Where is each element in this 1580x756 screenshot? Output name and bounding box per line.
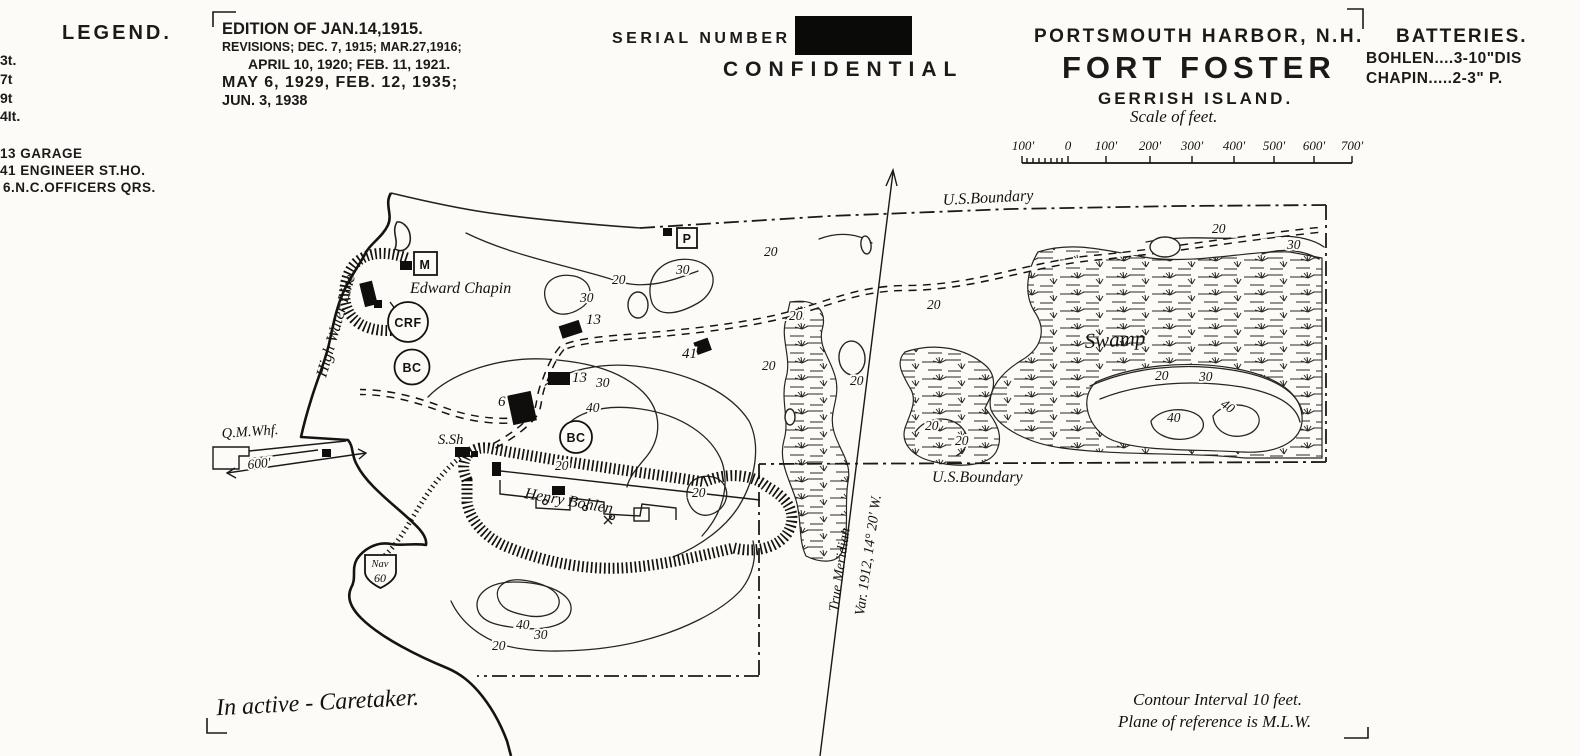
contour-label: 20 <box>762 358 776 373</box>
legend-partial-entry: 3t. <box>0 52 16 68</box>
building-label: 6 <box>498 394 506 410</box>
contour-label: 40 <box>586 400 600 415</box>
map-canvas: CRF BC BC M P Nav 60 U.S.Boundary U.S.Bo… <box>0 0 1580 756</box>
scale-tick-label: 200' <box>1139 138 1161 154</box>
edition-line: REVISIONS; DEC. 7, 1915; MAR.27,1916; <box>222 40 462 54</box>
contour-label: 30 <box>533 627 548 642</box>
contour-label: 40 <box>516 617 530 632</box>
bc-station-label-bohlen: BC <box>566 431 585 445</box>
building-label: 13 <box>586 312 601 328</box>
scale-bar <box>1022 156 1352 163</box>
scale-tick-label: 500' <box>1263 138 1285 154</box>
battery-bohlen-label: Henry Bohlen <box>522 485 614 517</box>
battery-chapin-label: Edward Chapin <box>409 280 511 297</box>
shore-shed-label: S.Sh <box>438 432 463 448</box>
contour-label: 20 <box>789 308 803 323</box>
variation-label: Var. 1912, 14° 20' W. <box>852 494 885 617</box>
battery-name: CHAPIN <box>1366 70 1428 87</box>
legend-partial-entry: 7t <box>0 71 12 87</box>
legend-partial-entry: 4It. <box>0 108 20 124</box>
edition-line: JUN. 3, 1938 <box>222 93 462 109</box>
contour-label: 20 <box>955 433 969 448</box>
legend-item: 41 ENGINEER ST.HO. <box>0 163 146 178</box>
fort-henry-bohlen <box>464 448 792 568</box>
contour-label: 20 <box>492 638 506 653</box>
contour-label: 30 <box>595 375 610 390</box>
scale-tick-label: 300' <box>1181 138 1203 154</box>
bc-station-label-chapin: BC <box>402 361 421 375</box>
contour-label: 20 <box>925 418 939 433</box>
building-label: 41 <box>682 346 697 362</box>
edition-line: EDITION OF JAN.14,1915. <box>222 20 462 39</box>
battery-armament: 3-10"DIS <box>1454 50 1522 67</box>
contour-label: 20 <box>1212 221 1226 236</box>
confidential-stamp: CONFIDENTIAL <box>723 58 963 82</box>
contour-label: 20 <box>1155 368 1169 383</box>
edition-line: APRIL 10, 1920; FEB. 11, 1921. <box>248 56 462 72</box>
battery-name: BOHLEN <box>1366 50 1434 67</box>
fort-foster-map-sheet: { "header": { "legend_title": "LEGEND.",… <box>0 0 1580 756</box>
swamp-label: Swamp <box>1084 326 1146 353</box>
scale-tick-label: 100' <box>1095 138 1117 154</box>
contour-label: 20 <box>555 458 569 473</box>
legend-title: LEGEND. <box>62 22 172 45</box>
battery-row-chapin: CHAPIN.....2-3" P. <box>1366 70 1503 88</box>
contour-label: 30 <box>1286 237 1301 252</box>
contour-label: 40 <box>1218 396 1238 416</box>
map-title-harbor: PORTSMOUTH HARBOR, N.H. <box>1034 26 1364 48</box>
legend-item: 13 GARAGE <box>0 146 83 161</box>
scale-tick-label: 100' <box>1012 138 1034 154</box>
mine-marker-label: M <box>420 258 431 272</box>
battery-row-bohlen: BOHLEN....3-10"DIS <box>1366 50 1522 68</box>
contour-label: 20 <box>612 272 626 287</box>
contour-label: 20 <box>927 297 941 312</box>
serial-number-redaction <box>795 16 912 55</box>
us-boundary-label-mid: U.S.Boundary <box>932 469 1024 486</box>
serial-number-label: SERIAL NUMBER <box>612 30 791 48</box>
building-label: 13 <box>572 370 587 386</box>
map-subtitle-island: GERRISH ISLAND. <box>1098 89 1293 109</box>
battery-leader-dots: .... <box>1434 50 1453 67</box>
qm-wharf <box>213 441 366 478</box>
scale-caption: Scale of feet. <box>1130 107 1217 127</box>
map-title-fort: FORT FOSTER <box>1062 50 1336 86</box>
scale-tick-label: 400' <box>1223 138 1245 154</box>
contour-label: 30 <box>579 290 594 305</box>
battery-leader-dots: ..... <box>1428 70 1452 87</box>
contour-label: 20 <box>764 244 778 259</box>
contour-label: 40 <box>1167 410 1181 425</box>
scale-tick-label: 0 <box>1065 138 1072 154</box>
p-marker-label: P <box>683 232 692 246</box>
scale-tick-label: 600' <box>1303 138 1325 154</box>
nav-marker-bottom-label: 60 <box>374 571 386 585</box>
buildings <box>400 228 712 457</box>
legend-partial-entry: 9t <box>0 90 12 106</box>
legend-item: 6.N.C.OFFICERS QRS. <box>3 180 156 195</box>
contour-label: 30 <box>1198 369 1213 384</box>
us-boundary-label-top: U.S.Boundary <box>942 187 1034 209</box>
battery-armament: 2-3" P. <box>1452 70 1502 87</box>
contour-label: 20 <box>692 485 706 500</box>
scale-tick-label: 700' <box>1341 138 1363 154</box>
crf-station-label: CRF <box>394 316 421 330</box>
contour-interval-note: Contour Interval 10 feet. <box>1133 690 1302 710</box>
batteries-title: BATTERIES. <box>1396 26 1528 48</box>
qm-wharf-label: Q.M.Whf. <box>221 422 279 442</box>
contour-label: 20 <box>850 373 864 388</box>
high-water-line-label: High Water Line <box>313 272 359 380</box>
wharf-distance-label: 600' <box>247 455 273 472</box>
edition-line: MAY 6, 1929, FEB. 12, 1935; <box>222 74 462 92</box>
nav-marker-top-label: Nav <box>371 559 389 570</box>
contour-label: 30 <box>675 262 690 277</box>
edition-block: EDITION OF JAN.14,1915. REVISIONS; DEC. … <box>222 20 462 109</box>
plane-reference-note: Plane of reference is M.L.W. <box>1118 712 1311 732</box>
